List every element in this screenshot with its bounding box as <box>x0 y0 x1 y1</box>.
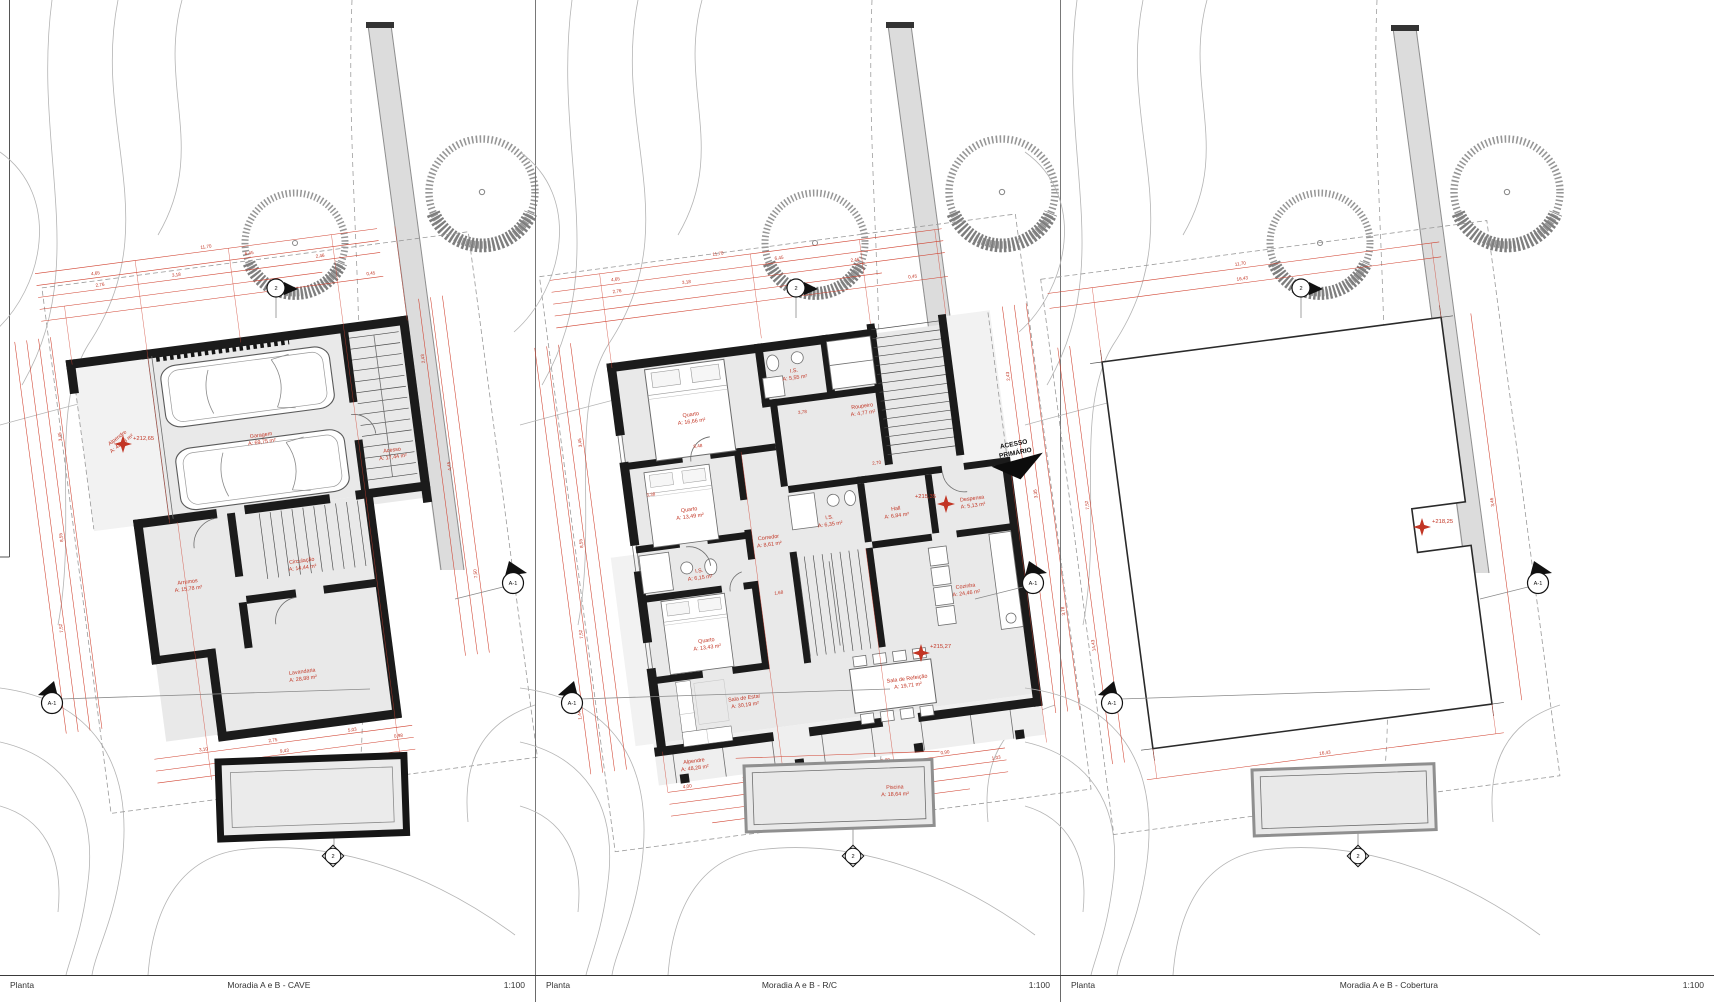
svg-text:7,52: 7,52 <box>58 623 64 633</box>
svg-text:8,55: 8,55 <box>578 538 584 548</box>
drawing-type-label: Planta <box>10 980 34 1002</box>
svg-text:2: 2 <box>331 854 334 860</box>
svg-text:1,03: 1,03 <box>991 755 1001 761</box>
svg-text:+215,27: +215,27 <box>930 644 951 650</box>
svg-text:11,70: 11,70 <box>1234 260 1246 266</box>
svg-text:2: 2 <box>1356 854 1359 860</box>
panel-rc: QuartoA: 16,66 m² I.S.A: 5,55 m² Roupeir… <box>514 0 1091 975</box>
title-bar: Planta Moradia A e B - CAVE 1:100 Planta… <box>0 975 1714 1002</box>
svg-text:7,52: 7,52 <box>1084 500 1090 510</box>
svg-text:9,43: 9,43 <box>280 748 290 754</box>
svg-text:7,52: 7,52 <box>578 629 584 639</box>
tree-icon <box>1454 139 1560 245</box>
svg-text:+215,35: +215,35 <box>915 494 936 500</box>
svg-text:2: 2 <box>274 286 277 292</box>
svg-text:+212,65: +212,65 <box>133 436 154 442</box>
svg-text:3,45: 3,45 <box>577 438 583 448</box>
section-marker-right: A-1 <box>1480 561 1552 599</box>
panel-cave: AlpendreA: 43,43 m² GaragemA: 69,75 m² A… <box>0 0 537 975</box>
sheet-edge <box>0 0 10 557</box>
drawing-sheet: AlpendreA: 43,43 m² GaragemA: 69,75 m² A… <box>0 0 1714 1002</box>
svg-text:5,03: 5,03 <box>347 727 357 733</box>
bed-icon <box>661 593 734 674</box>
svg-text:2,43: 2,43 <box>1005 371 1011 381</box>
svg-text:2: 2 <box>851 854 854 860</box>
svg-text:11,70: 11,70 <box>712 250 724 256</box>
svg-text:+218,25: +218,25 <box>1432 519 1453 525</box>
section-marker-bottom: 2 <box>1347 845 1368 866</box>
svg-text:A-1: A-1 <box>568 701 577 707</box>
svg-text:4,65: 4,65 <box>91 270 101 276</box>
svg-text:A-1: A-1 <box>48 701 57 707</box>
cave-building <box>66 315 460 755</box>
bathtub-icon <box>639 552 674 594</box>
svg-text:2: 2 <box>1299 286 1302 292</box>
svg-text:A-1: A-1 <box>1029 581 1038 587</box>
svg-text:3,35: 3,35 <box>1032 489 1038 499</box>
drawing-type-label: Planta <box>1071 980 1095 1002</box>
section-marker-bottom: 2 <box>842 845 863 866</box>
svg-text:3,10: 3,10 <box>199 746 209 752</box>
bathtub-icon <box>788 493 818 530</box>
pool <box>1252 764 1436 836</box>
panel-cobertura: 11,70 16,43 7,52 14,43 3,46 16,43 +218,2… <box>1019 0 1560 975</box>
svg-text:A-1: A-1 <box>509 581 518 587</box>
svg-text:4,45: 4,45 <box>446 461 452 471</box>
tree-icon <box>949 139 1055 245</box>
svg-text:2,75: 2,75 <box>268 737 278 743</box>
section-marker-bottom: 2 <box>322 845 343 866</box>
svg-text:A-1: A-1 <box>1534 581 1543 587</box>
bed-icon <box>645 359 736 461</box>
drawing-title: Moradia A e B - CAVE <box>34 980 504 1002</box>
svg-text:11,70: 11,70 <box>200 243 212 249</box>
pool <box>218 756 407 839</box>
svg-text:2,76: 2,76 <box>95 282 105 288</box>
bed-icon <box>644 464 719 547</box>
svg-text:3,45: 3,45 <box>57 432 63 442</box>
level-mark: +218,25 <box>1413 518 1453 536</box>
drawing-scale: 1:100 <box>504 980 525 1002</box>
svg-text:16,43: 16,43 <box>1319 749 1331 756</box>
svg-text:0,98: 0,98 <box>394 733 404 739</box>
drawing-scale: 1:100 <box>1683 980 1704 1002</box>
svg-text:8,55: 8,55 <box>58 532 64 542</box>
tree-icon <box>245 193 345 293</box>
svg-text:0,45: 0,45 <box>908 273 918 279</box>
svg-text:14,43: 14,43 <box>1090 639 1097 651</box>
tree-icon <box>1270 193 1370 293</box>
svg-text:4,65: 4,65 <box>611 276 621 282</box>
drawing-title: Moradia A e B - Cobertura <box>1095 980 1683 1002</box>
svg-text:16,43: 16,43 <box>1236 275 1248 282</box>
title-block-cave: Planta Moradia A e B - CAVE 1:100 <box>0 976 535 1002</box>
title-block-cobertura: Planta Moradia A e B - Cobertura 1:100 <box>1060 976 1714 1002</box>
svg-text:3,46: 3,46 <box>1489 497 1495 507</box>
svg-text:A-1: A-1 <box>1108 701 1117 707</box>
drawing-type-label: Planta <box>546 980 570 1002</box>
svg-text:2,76: 2,76 <box>612 288 622 294</box>
tree-icon <box>765 193 865 293</box>
drawing-title: Moradia A e B - R/C <box>570 980 1029 1002</box>
svg-text:4,00: 4,00 <box>682 783 692 789</box>
tree-icon <box>429 139 535 245</box>
drawing-scale: 1:100 <box>1029 980 1050 1002</box>
rc-building <box>585 308 1047 789</box>
svg-text:3,18: 3,18 <box>172 272 182 278</box>
svg-text:2: 2 <box>794 286 797 292</box>
svg-text:0,45: 0,45 <box>366 270 376 276</box>
title-block-rc: Planta Moradia A e B - R/C 1:100 <box>535 976 1060 1002</box>
plans-canvas: AlpendreA: 43,43 m² GaragemA: 69,75 m² A… <box>0 0 1714 975</box>
svg-text:7,50: 7,50 <box>472 569 478 579</box>
svg-text:0,90: 0,90 <box>940 749 950 755</box>
svg-text:3,18: 3,18 <box>682 279 692 285</box>
